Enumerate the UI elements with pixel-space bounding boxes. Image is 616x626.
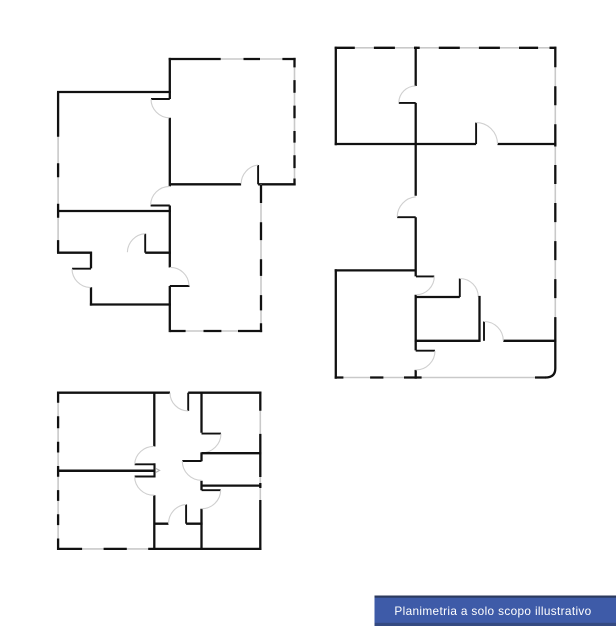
svg-text:Planimetria a solo scopo illus: Planimetria a solo scopo illustrativo	[394, 604, 591, 618]
